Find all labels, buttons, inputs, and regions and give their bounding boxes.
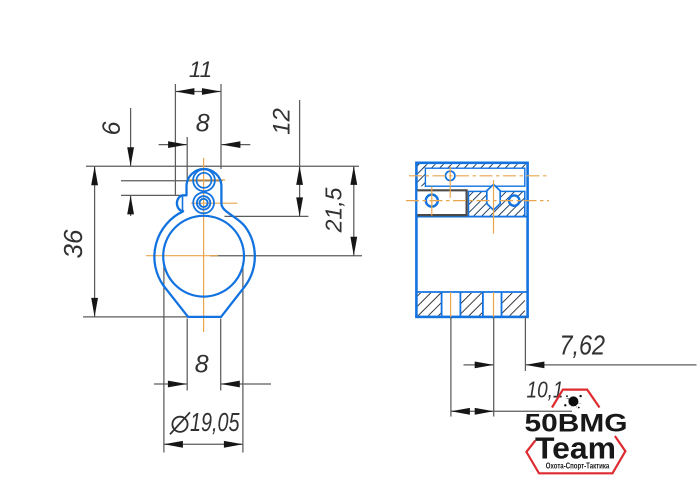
svg-text:7,62: 7,62 bbox=[560, 330, 606, 361]
svg-text:8: 8 bbox=[195, 351, 209, 379]
svg-text:6: 6 bbox=[98, 121, 126, 135]
svg-text:Охота-Спорт-Тактика: Охота-Спорт-Тактика bbox=[546, 461, 610, 470]
svg-text:Team: Team bbox=[535, 432, 616, 466]
svg-text:19,05: 19,05 bbox=[190, 407, 240, 437]
svg-text:21,5: 21,5 bbox=[321, 187, 347, 233]
svg-text:11: 11 bbox=[189, 57, 212, 82]
svg-text:36: 36 bbox=[58, 229, 88, 258]
svg-text:12: 12 bbox=[269, 108, 296, 135]
svg-text:8: 8 bbox=[196, 110, 210, 138]
